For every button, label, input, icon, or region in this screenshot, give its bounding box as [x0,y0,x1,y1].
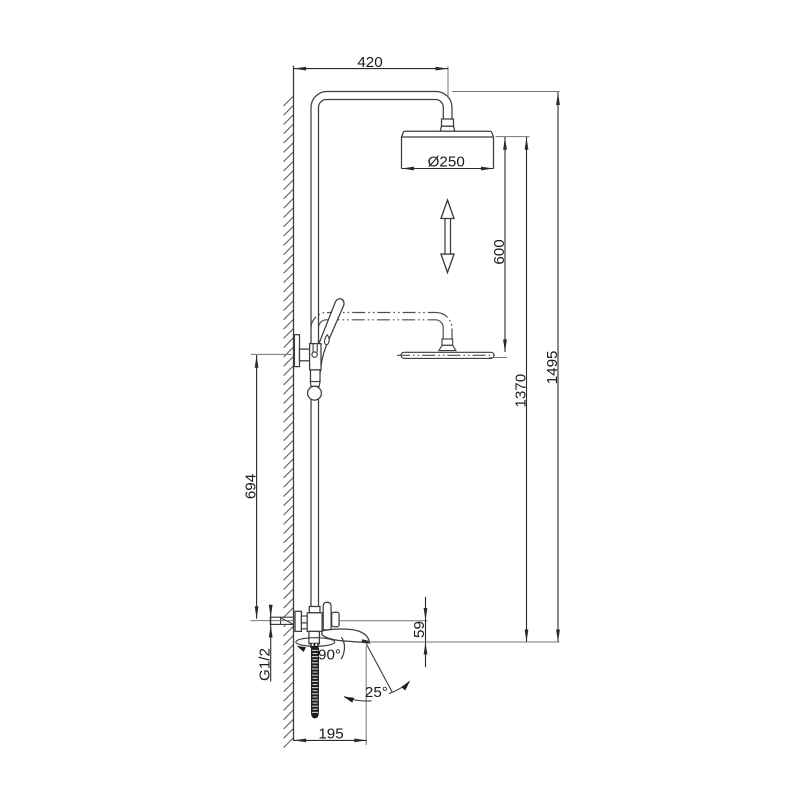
svg-text:600: 600 [491,239,508,264]
svg-text:25°: 25° [365,684,388,701]
svg-text:90°: 90° [318,647,341,664]
svg-text:1495: 1495 [544,351,561,385]
svg-text:195: 195 [318,726,343,743]
svg-text:Ø250: Ø250 [428,153,465,170]
svg-text:420: 420 [357,54,382,71]
svg-text:59: 59 [411,621,428,638]
svg-text:G1/2: G1/2 [257,648,274,681]
svg-text:1370: 1370 [513,374,530,408]
svg-text:694: 694 [243,474,260,499]
